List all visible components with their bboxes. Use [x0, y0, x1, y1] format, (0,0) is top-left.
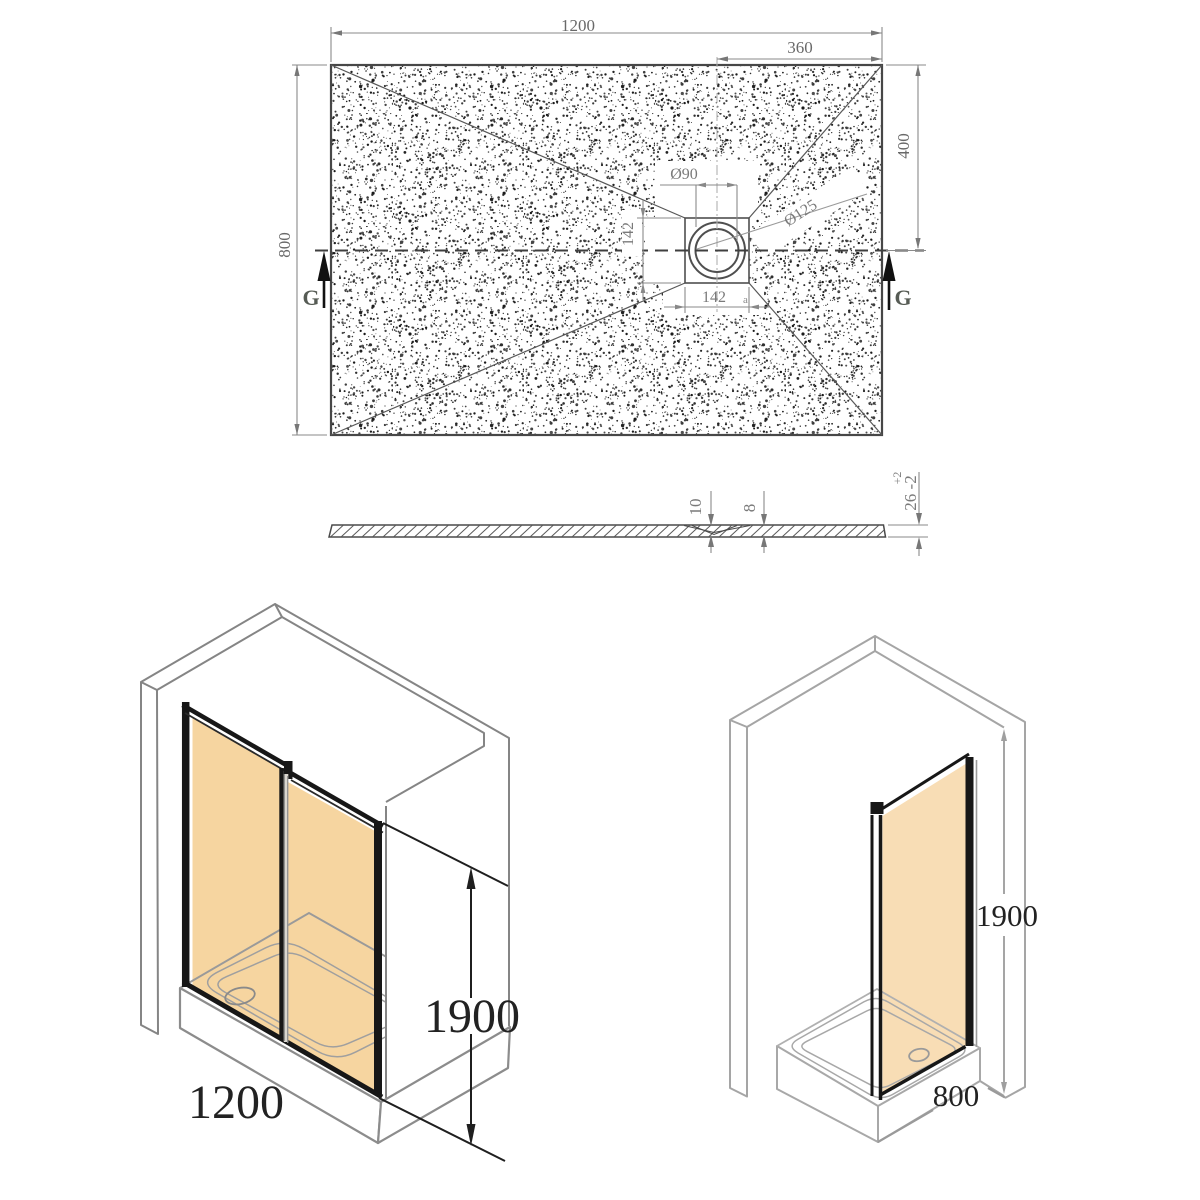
- svg-text:1900: 1900: [976, 898, 1038, 933]
- svg-text:142: 142: [620, 222, 637, 246]
- svg-text:400: 400: [894, 133, 913, 159]
- svg-text:800: 800: [275, 232, 294, 258]
- svg-text:1200: 1200: [188, 1076, 284, 1129]
- svg-text:1200: 1200: [561, 16, 595, 35]
- svg-text:10: 10: [686, 499, 705, 516]
- svg-text:8: 8: [740, 504, 759, 513]
- svg-text:800: 800: [933, 1078, 980, 1113]
- svg-text:Ø90: Ø90: [670, 166, 698, 183]
- svg-text:G: G: [302, 285, 319, 310]
- svg-text:142: 142: [702, 289, 726, 306]
- svg-text:1900: 1900: [424, 990, 520, 1043]
- svg-text:a: a: [743, 294, 748, 306]
- svg-text:G: G: [894, 285, 911, 310]
- svg-text:360: 360: [787, 38, 813, 57]
- svg-text:+2: +2: [890, 472, 904, 485]
